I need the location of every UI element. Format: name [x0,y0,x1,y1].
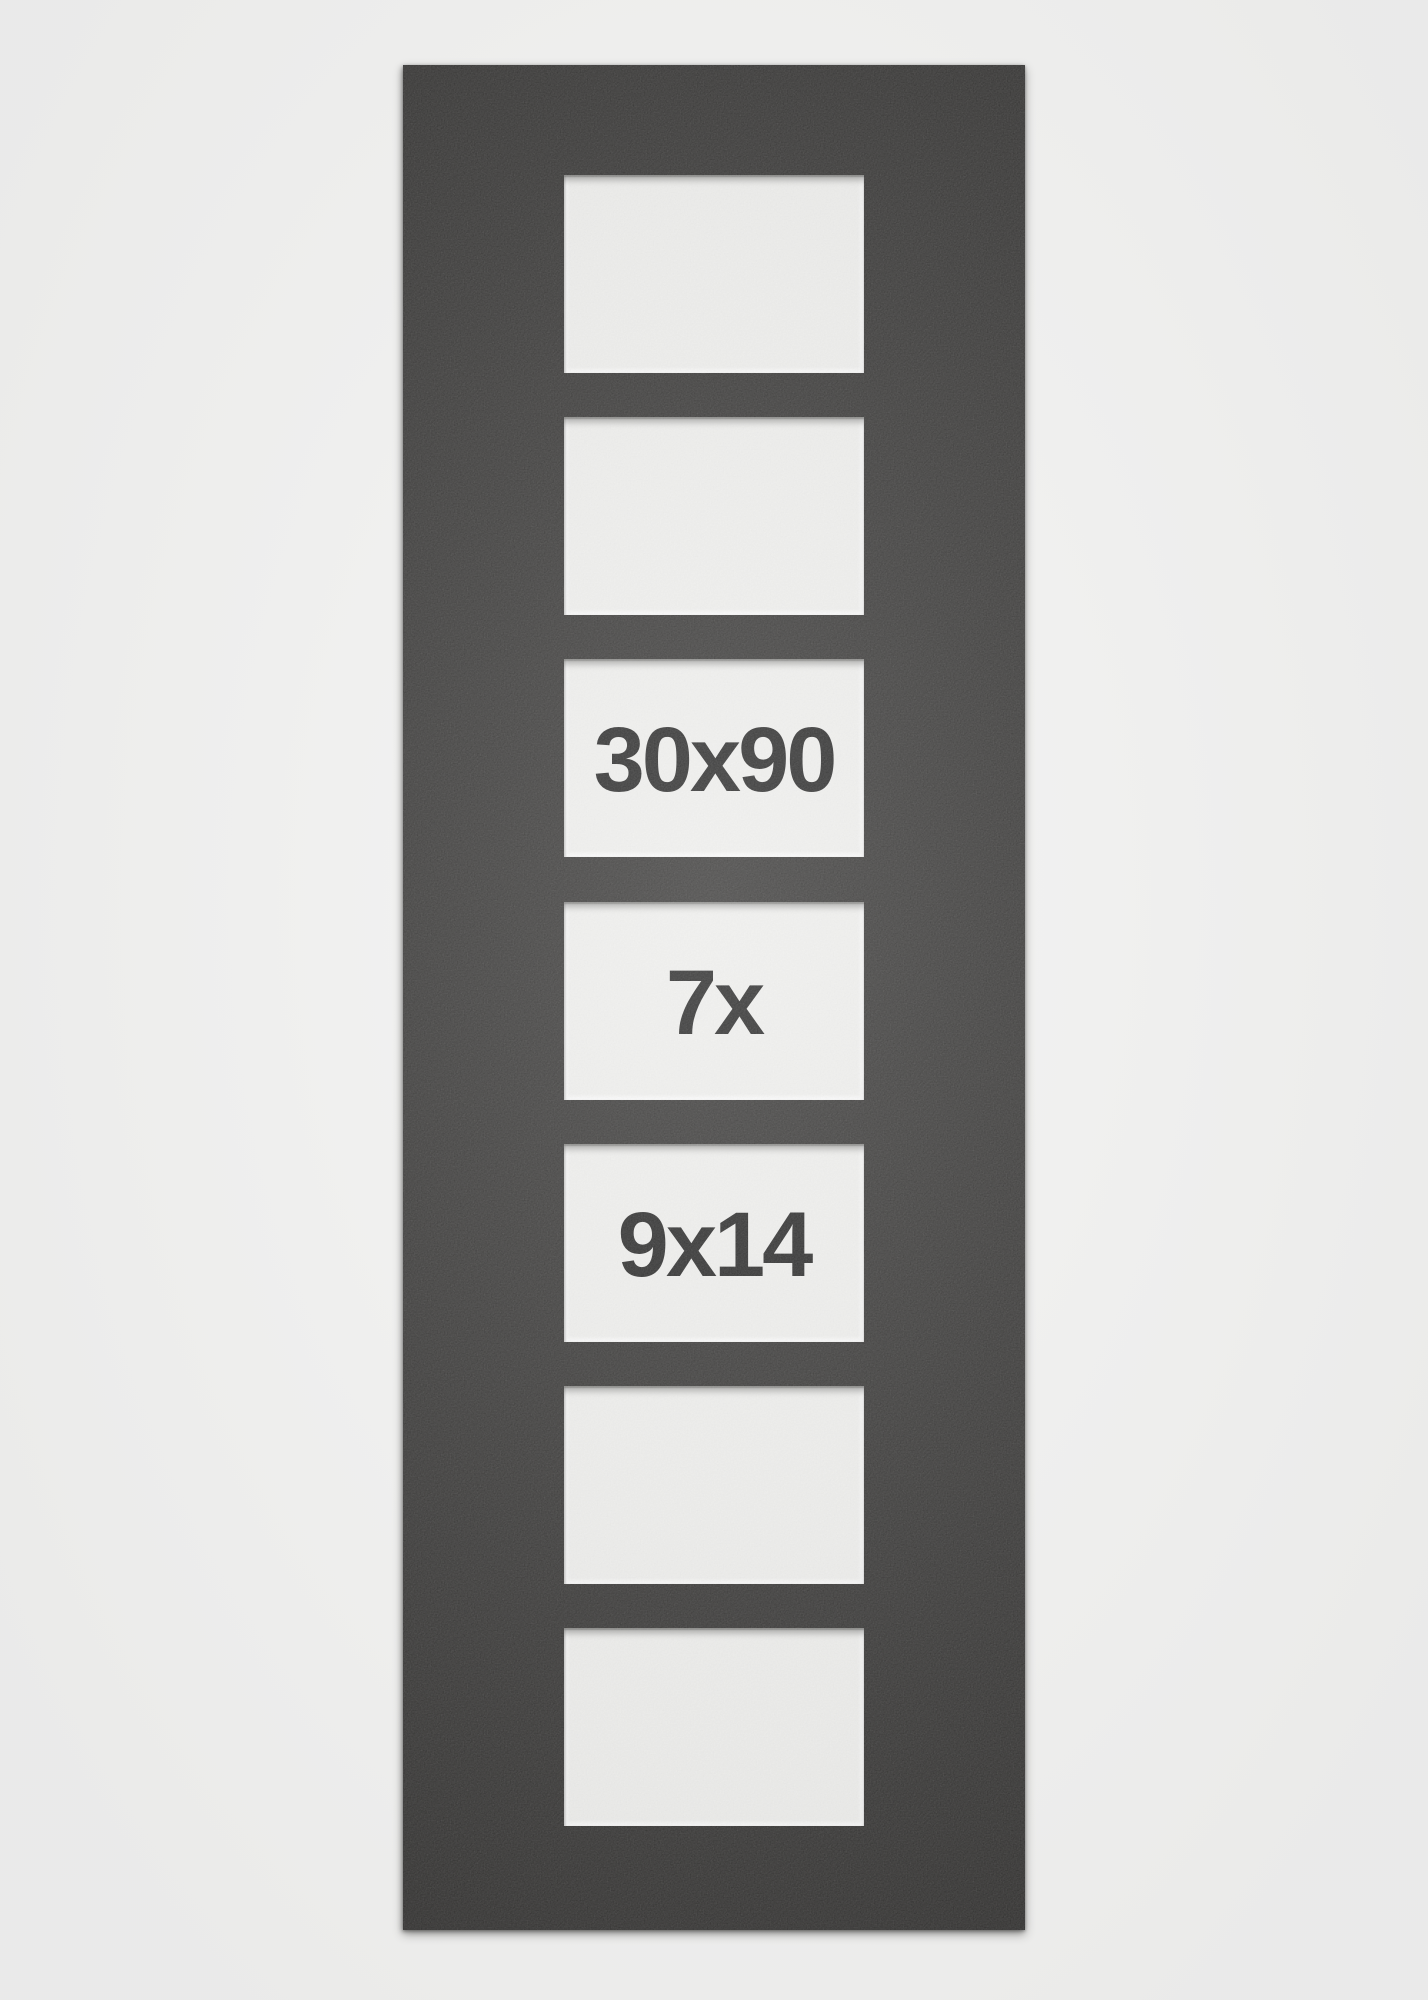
mat-opening-7 [564,1628,864,1826]
product-image: 30x90 7x 9x14 [0,0,1428,2000]
passepartout-mat: 30x90 7x 9x14 [403,65,1025,1930]
mat-opening-6 [564,1386,864,1584]
mat-opening-1 [564,175,864,373]
mat-opening-2 [564,417,864,615]
mat-opening-4: 7x [564,902,864,1100]
mat-opening-5: 9x14 [564,1144,864,1342]
mat-opening-3: 30x90 [564,659,864,857]
opening-size-label: 9x14 [618,1195,811,1291]
mat-size-label: 30x90 [594,710,835,806]
opening-count-label: 7x [666,953,762,1049]
